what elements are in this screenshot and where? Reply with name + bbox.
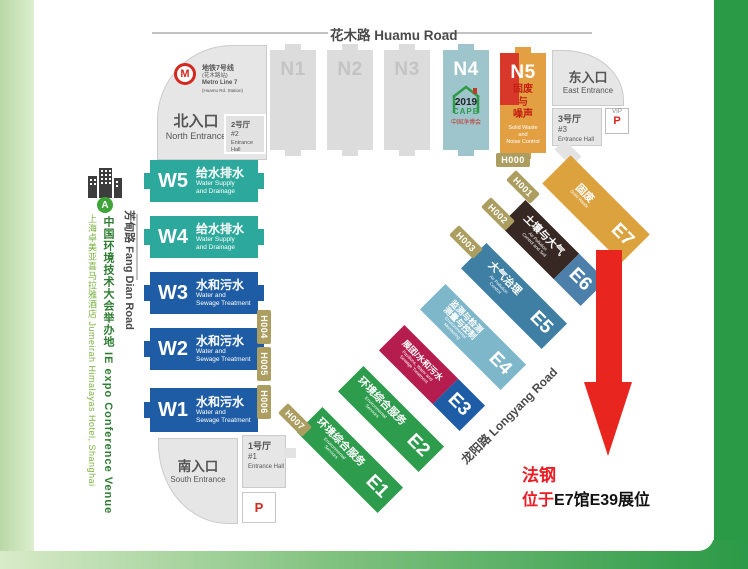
hotel-label: 上海卓美亚喜马拉雅酒店 Jumeirah Himalayas Hotel, Sh… [86, 214, 99, 487]
entrance-hall-2-en: Entrance Hall [231, 140, 264, 155]
hall-w3-en1: Water and [196, 292, 258, 300]
metro-line-en: Metro Line 7 [202, 80, 243, 88]
entrance-hall-2: 2号厅 #2 Entrance Hall [224, 114, 266, 154]
hall-w3: W3 水和污水 Water and Sewage Treatment [150, 272, 258, 314]
cape-name: CAPE [453, 107, 479, 116]
hall-w2-en2: Sewage Treatment [196, 356, 258, 364]
hall-w4-text: 给水排水 Water Supply and Drainage [196, 222, 258, 252]
booth-location: 位于E7馆E39展位 [522, 486, 650, 510]
hall-n5-en1: Solid Waste [500, 125, 546, 132]
metro-station-info: 地铁7号线 (花木路站) Metro Line 7 (Huamu Rd. Sta… [202, 64, 243, 94]
hall-w3-zh: 水和污水 [196, 278, 258, 292]
hall-w5-en1: Water Supply [196, 180, 258, 188]
hall-e1-zh: 环境综合服务 [314, 417, 367, 470]
north-entrance-en: North Entrance [158, 131, 234, 141]
cape-2019-logo: 2019 CAPE 中国净博会 [446, 83, 486, 129]
hall-w2-en1: Water and [196, 348, 258, 356]
hall-w4-zh: 给水排水 [196, 222, 258, 236]
hall-n3-code: N3 [384, 59, 430, 81]
hall-w4: W4 给水排水 Water Supply and Drainage [150, 216, 258, 258]
entrance-hall-3: 3号厅 #3 Entrance Hall [552, 108, 602, 146]
hall-n5-en3: Noise Control [500, 139, 546, 146]
hall-w5: W5 给水排水 Water Supply and Drainage [150, 160, 258, 202]
building-icon [86, 166, 124, 198]
gate-h005: H005 [257, 347, 271, 381]
hall-n5-zh2: 与 [500, 97, 546, 110]
south-parking-p: P [255, 500, 264, 515]
gate-h000: H000 [496, 153, 530, 167]
hall-n5-code: N5 [500, 62, 546, 84]
hall-n5: N5 固废 与 噪声 Solid Waste and Noise Control [500, 53, 546, 153]
hall-w3-en2: Sewage Treatment [196, 300, 258, 308]
hall-w1-en2: Sewage Treatment [196, 417, 258, 425]
hall-n2-code: N2 [327, 59, 373, 81]
vip-parking: VIP P [605, 108, 629, 134]
east-entrance-zh: 东入口 [553, 67, 623, 86]
south-entrance-zh: 南入口 [159, 455, 237, 475]
entrance-hall-1-zh: 1号厅 [248, 440, 285, 452]
entrance-hall-1-en: Entrance Hall [248, 463, 285, 471]
hall-n4: N4 2019 CAPE 中国净博会 [443, 50, 489, 150]
metro-station-en: (Huamu Rd. Station) [202, 88, 243, 94]
south-entrance-en: South Entrance [159, 475, 237, 484]
metro-line-zh: 地铁7号线 [202, 64, 243, 73]
hall-n1-code: N1 [270, 59, 316, 81]
hall-w1-zh: 水和污水 [196, 395, 258, 409]
hall-w4-en1: Water Supply [196, 236, 258, 244]
hall-w3-text: 水和污水 Water and Sewage Treatment [196, 278, 258, 308]
huamu-road-line-left [152, 32, 328, 34]
hall-w2-code: W2 [150, 338, 196, 361]
huamu-road-label: 花木路 Huamu Road [330, 24, 442, 44]
hall-w1: W1 水和污水 Water and Sewage Treatment [150, 388, 258, 432]
north-entrance-zh: 北入口 [158, 110, 234, 131]
gate-h003: H003 [449, 225, 483, 259]
hall-w2-text: 水和污水 Water and Sewage Treatment [196, 334, 258, 364]
hall-n5-zh3: 噪声 [500, 109, 546, 122]
hall-w5-en2: and Drainage [196, 188, 258, 196]
hall-w4-code: W4 [150, 226, 196, 249]
entrance-hall-1: 1号厅 #1 Entrance Hall [242, 435, 286, 488]
gate-h007: H007 [278, 403, 312, 437]
hall-w2-zh: 水和污水 [196, 334, 258, 348]
hall-n1: N1 [270, 50, 316, 150]
metro-logo-letter: M [180, 68, 189, 80]
hall-w5-zh: 给水排水 [196, 166, 258, 180]
marker-a-letter: A [101, 200, 108, 211]
metro-line7-icon: M [174, 63, 196, 85]
hall-w1-text: 水和污水 Water and Sewage Treatment [196, 395, 258, 425]
marker-a-icon: A [97, 197, 113, 213]
hall-w5-code: W5 [150, 170, 196, 193]
booth-company: 法钢 [522, 461, 556, 486]
hall-w4-en2: and Drainage [196, 244, 258, 252]
vip-parking-p: P [606, 115, 628, 127]
hall-w3-code: W3 [150, 282, 196, 305]
south-entrance-area: 南入口 South Entrance [158, 438, 238, 524]
hall-w2: W2 水和污水 Water and Sewage Treatment [150, 328, 258, 370]
hall-n4-code: N4 [443, 59, 489, 81]
hall-n5-en2: and [500, 132, 546, 139]
gate-h001: H001 [506, 170, 540, 204]
hall1-corridor [284, 448, 296, 458]
east-entrance-en: East Entrance [553, 86, 623, 95]
hall-e2-zh: 环境综合服务 [355, 376, 408, 429]
hall-n3: N3 [384, 50, 430, 150]
cape-zh: 中国净博会 [451, 118, 481, 126]
expo-floorplan: 花木路 Huamu Road 芳甸路 Fang Dian Road 龙阳路 Lo… [0, 0, 748, 569]
hall-n2: N2 [327, 50, 373, 150]
south-parking: P [242, 492, 276, 523]
entrance-hall-2-zh: 2号厅 [231, 120, 264, 130]
huamu-road-line-right [442, 32, 592, 34]
gate-h004: H004 [257, 310, 271, 344]
entrance-hall-3-zh: 3号厅 [558, 113, 601, 125]
north-entrance-label: 北入口 North Entrance [158, 110, 234, 141]
map-content: 花木路 Huamu Road 芳甸路 Fang Dian Road 龙阳路 Lo… [0, 0, 748, 569]
entrance-hall-2-no: #2 [231, 130, 264, 139]
entrance-hall-3-no: #3 [558, 125, 601, 136]
booth-location-text: E7馆E39展位 [554, 492, 650, 509]
hall-w1-en1: Water and [196, 409, 258, 417]
east-entrance-area: 东入口 East Entrance [552, 50, 624, 106]
fangdian-road-label: 芳甸路 Fang Dian Road [122, 200, 138, 340]
metro-station-zh: (花木路站) [202, 73, 243, 80]
venue-label: 中国环境技术大会举办地 IE expo Conference Venue [100, 216, 116, 514]
arrow-down-icon [596, 250, 622, 384]
booth-location-prefix: 位于 [522, 492, 554, 509]
arrow-head-icon [584, 382, 632, 456]
hall-w5-text: 给水排水 Water Supply and Drainage [196, 166, 258, 196]
entrance-hall-1-no: #1 [248, 452, 285, 463]
hall-w1-code: W1 [150, 399, 196, 422]
gate-h006: H006 [257, 385, 271, 419]
hall-n5-zh1: 固废 [500, 84, 546, 97]
